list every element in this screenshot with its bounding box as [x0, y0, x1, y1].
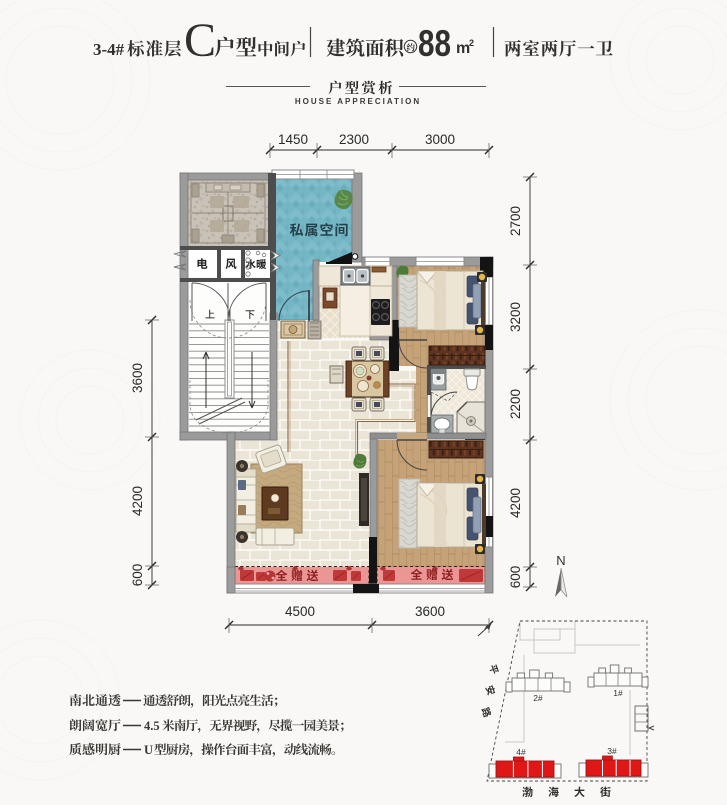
svg-text:HOUSE APPRECIATION: HOUSE APPRECIATION	[295, 97, 421, 106]
svg-text:4200: 4200	[130, 486, 145, 516]
svg-text:4500: 4500	[285, 604, 315, 619]
svg-text:N: N	[556, 553, 565, 568]
svg-text:2: 2	[469, 38, 474, 48]
svg-text:2#: 2#	[533, 693, 543, 703]
svg-text:600: 600	[130, 564, 145, 587]
svg-text:88: 88	[418, 23, 451, 64]
svg-text:3-4#: 3-4#	[93, 40, 125, 59]
svg-text:C: C	[184, 14, 216, 67]
svg-text:4#: 4#	[516, 747, 526, 757]
svg-text:2300: 2300	[339, 132, 369, 147]
svg-text:4.5: 4.5	[144, 719, 160, 733]
svg-text:3000: 3000	[425, 132, 455, 147]
svg-text:2200: 2200	[508, 389, 523, 419]
svg-text:2700: 2700	[508, 206, 523, 236]
svg-text:1450: 1450	[278, 132, 308, 147]
svg-text:3#: 3#	[607, 746, 617, 756]
svg-text:600: 600	[508, 566, 523, 589]
svg-text:1#: 1#	[613, 688, 623, 698]
svg-text:3600: 3600	[130, 363, 145, 393]
svg-text:U: U	[144, 743, 153, 757]
svg-text:3200: 3200	[508, 302, 523, 332]
svg-text:4200: 4200	[508, 488, 523, 518]
svg-text:3600: 3600	[415, 604, 445, 619]
